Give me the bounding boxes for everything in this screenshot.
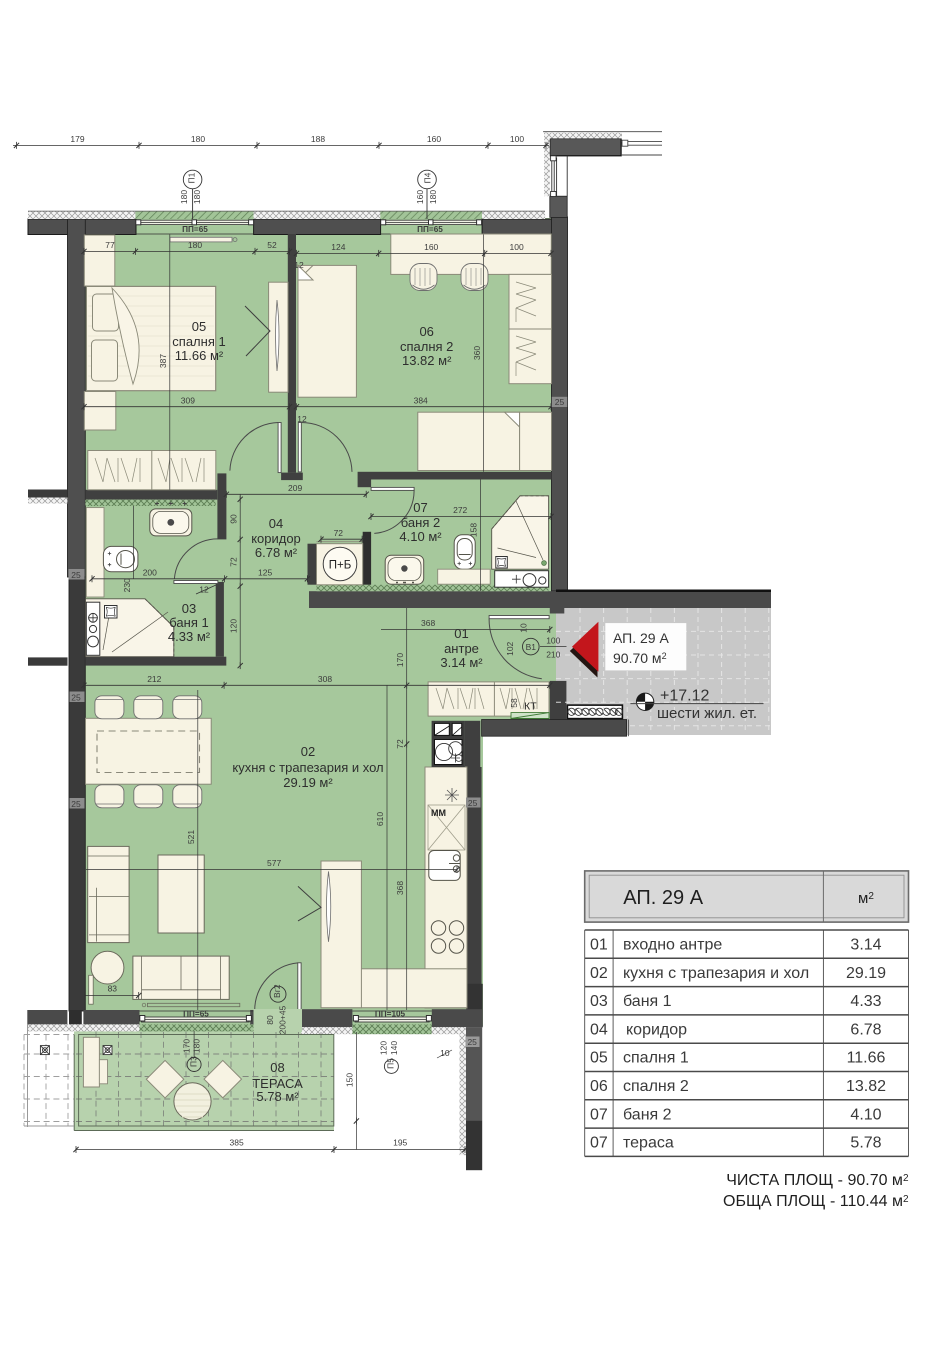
svg-text:25: 25 — [71, 570, 81, 580]
svg-text:83: 83 — [108, 984, 118, 994]
svg-text:ММ: ММ — [431, 808, 446, 818]
svg-text:6.78: 6.78 — [850, 1021, 881, 1038]
svg-text:ПП=65: ПП=65 — [182, 225, 208, 234]
svg-text:180: 180 — [191, 134, 205, 144]
svg-text:100: 100 — [510, 242, 524, 252]
svg-text:120: 120 — [379, 1041, 389, 1055]
svg-text:5.78 м²: 5.78 м² — [256, 1089, 299, 1104]
svg-text:29.19 м²: 29.19 м² — [283, 775, 333, 790]
svg-text:5.78: 5.78 — [850, 1135, 881, 1152]
svg-text:+17.12: +17.12 — [660, 688, 709, 705]
svg-text:12: 12 — [199, 585, 209, 595]
svg-text:209: 209 — [288, 483, 302, 493]
svg-text:11.66 м²: 11.66 м² — [175, 348, 224, 363]
svg-text:200+45: 200+45 — [278, 1005, 288, 1034]
svg-text:04: 04 — [269, 516, 283, 531]
svg-text:01: 01 — [590, 937, 608, 954]
svg-text:10: 10 — [440, 1048, 450, 1058]
svg-text:05: 05 — [192, 319, 206, 334]
svg-text:272: 272 — [453, 505, 467, 515]
svg-text:180: 180 — [192, 190, 202, 204]
svg-text:25: 25 — [468, 798, 478, 808]
svg-text:3.14: 3.14 — [850, 937, 881, 954]
svg-text:11.66: 11.66 — [847, 1050, 886, 1067]
svg-text:05: 05 — [590, 1050, 608, 1067]
svg-text:4.33 м²: 4.33 м² — [168, 629, 211, 644]
svg-text:385: 385 — [230, 1138, 244, 1148]
svg-text:П5: П5 — [386, 1058, 396, 1069]
svg-text:25: 25 — [71, 799, 81, 809]
svg-text:ПП=65: ПП=65 — [183, 1010, 209, 1019]
svg-text:102: 102 — [505, 641, 515, 655]
svg-text:баня 2: баня 2 — [623, 1106, 672, 1123]
svg-text:188: 188 — [311, 134, 325, 144]
svg-text:В1: В1 — [526, 642, 537, 652]
svg-text:29.19: 29.19 — [846, 965, 886, 982]
svg-text:ОБЩА ПЛОЩ - 110.44 м2: ОБЩА ПЛОЩ - 110.44 м2 — [723, 1193, 909, 1210]
svg-text:100: 100 — [510, 134, 524, 144]
svg-text:72: 72 — [229, 557, 239, 567]
svg-text:12: 12 — [297, 414, 307, 424]
svg-text:150: 150 — [345, 1073, 355, 1087]
svg-text:100: 100 — [546, 636, 560, 646]
svg-text:П4: П4 — [422, 172, 432, 183]
svg-text:72: 72 — [334, 528, 344, 538]
svg-text:77: 77 — [105, 240, 115, 250]
svg-text:баня 1: баня 1 — [169, 615, 208, 630]
svg-text:03: 03 — [182, 601, 196, 616]
svg-text:521: 521 — [186, 830, 196, 844]
svg-text:200: 200 — [143, 567, 157, 577]
svg-text:ПП=105: ПП=105 — [375, 1010, 406, 1019]
svg-text:90.70 м2: 90.70 м2 — [613, 650, 667, 666]
svg-text:368: 368 — [395, 881, 405, 895]
svg-text:610: 610 — [375, 812, 385, 826]
svg-text:125: 125 — [258, 567, 272, 577]
svg-text:309: 309 — [181, 396, 195, 406]
svg-text:3.14 м²: 3.14 м² — [440, 655, 483, 670]
svg-text:140: 140 — [389, 1041, 399, 1055]
svg-text:25: 25 — [467, 1037, 477, 1047]
svg-text:577: 577 — [267, 858, 281, 868]
svg-text:160: 160 — [415, 190, 425, 204]
svg-text:спалня 2: спалня 2 — [623, 1078, 689, 1095]
svg-text:спалня 1: спалня 1 — [172, 334, 225, 349]
svg-text:коридор: коридор — [251, 531, 301, 546]
svg-text:02: 02 — [301, 744, 315, 759]
svg-text:384: 384 — [414, 396, 428, 406]
svg-text:тераса: тераса — [623, 1135, 674, 1152]
svg-text:Вг2: Вг2 — [272, 984, 282, 998]
svg-text:03: 03 — [590, 993, 608, 1010]
svg-text:180: 180 — [428, 190, 438, 204]
svg-text:10: 10 — [519, 623, 529, 633]
svg-text:308: 308 — [318, 674, 332, 684]
svg-text:13.82 м²: 13.82 м² — [402, 353, 452, 368]
svg-text:06: 06 — [590, 1078, 608, 1095]
svg-text:360: 360 — [472, 346, 482, 360]
svg-text:210: 210 — [546, 650, 560, 660]
svg-text:160: 160 — [424, 242, 438, 252]
svg-text:72: 72 — [395, 739, 405, 749]
svg-text:58: 58 — [509, 698, 519, 708]
svg-text:П+Б: П+Б — [329, 560, 352, 572]
svg-text:180: 180 — [188, 240, 202, 250]
svg-text:01: 01 — [454, 626, 468, 641]
svg-text:шести жил. ет.: шести жил. ет. — [657, 705, 757, 722]
svg-text:12: 12 — [294, 260, 304, 270]
svg-text:коридор: коридор — [626, 1021, 687, 1038]
svg-text:АП. 29 А: АП. 29 А — [613, 630, 669, 646]
svg-text:230: 230 — [122, 578, 132, 592]
svg-text:120: 120 — [229, 619, 239, 633]
svg-text:387: 387 — [158, 354, 168, 368]
svg-text:170: 170 — [181, 1039, 191, 1053]
svg-text:АП. 29 А: АП. 29 А — [623, 887, 703, 909]
svg-text:6.78 м²: 6.78 м² — [255, 545, 298, 560]
svg-text:160: 160 — [427, 134, 441, 144]
svg-text:спалня 1: спалня 1 — [623, 1050, 689, 1067]
svg-text:баня 1: баня 1 — [623, 993, 672, 1010]
svg-text:П1: П1 — [186, 172, 196, 183]
svg-text:158: 158 — [469, 523, 479, 537]
svg-text:4.10 м²: 4.10 м² — [399, 529, 442, 544]
svg-text:антре: антре — [444, 641, 479, 656]
svg-text:170: 170 — [395, 653, 405, 667]
svg-text:25: 25 — [555, 397, 565, 407]
svg-text:80: 80 — [265, 1015, 275, 1025]
svg-text:ЧИСТА ПЛОЩ - 90.70 м2: ЧИСТА ПЛОЩ - 90.70 м2 — [726, 1172, 909, 1189]
svg-text:07: 07 — [413, 500, 427, 515]
svg-text:180: 180 — [179, 190, 189, 204]
svg-text:124: 124 — [331, 242, 345, 252]
svg-text:07: 07 — [590, 1135, 608, 1152]
svg-text:07: 07 — [590, 1106, 608, 1123]
svg-text:212: 212 — [147, 674, 161, 684]
svg-text:П3: П3 — [188, 1056, 198, 1067]
svg-text:спалня 2: спалня 2 — [400, 339, 453, 354]
svg-text:02: 02 — [590, 965, 608, 982]
svg-text:06: 06 — [419, 324, 433, 339]
svg-text:кухня с трапезария и хол: кухня с трапезария и хол — [232, 760, 383, 775]
svg-text:08: 08 — [270, 1060, 284, 1075]
svg-text:25: 25 — [71, 693, 81, 703]
svg-text:кухня с трапезария и хол: кухня с трапезария и хол — [623, 965, 809, 982]
svg-text:13.82: 13.82 — [846, 1078, 886, 1095]
svg-text:179: 179 — [70, 134, 84, 144]
svg-text:195: 195 — [393, 1138, 407, 1148]
svg-text:52: 52 — [267, 240, 277, 250]
svg-text:180: 180 — [192, 1039, 202, 1053]
svg-text:4.33: 4.33 — [850, 993, 881, 1010]
svg-text:4.10: 4.10 — [850, 1106, 881, 1123]
svg-text:04: 04 — [590, 1021, 608, 1038]
svg-text:ПП=65: ПП=65 — [417, 225, 443, 234]
svg-text:90: 90 — [229, 514, 239, 524]
svg-text:КТ: КТ — [524, 701, 537, 713]
svg-text:входно антре: входно антре — [623, 937, 722, 954]
svg-text:368: 368 — [421, 618, 435, 628]
svg-text:баня 2: баня 2 — [401, 515, 440, 530]
